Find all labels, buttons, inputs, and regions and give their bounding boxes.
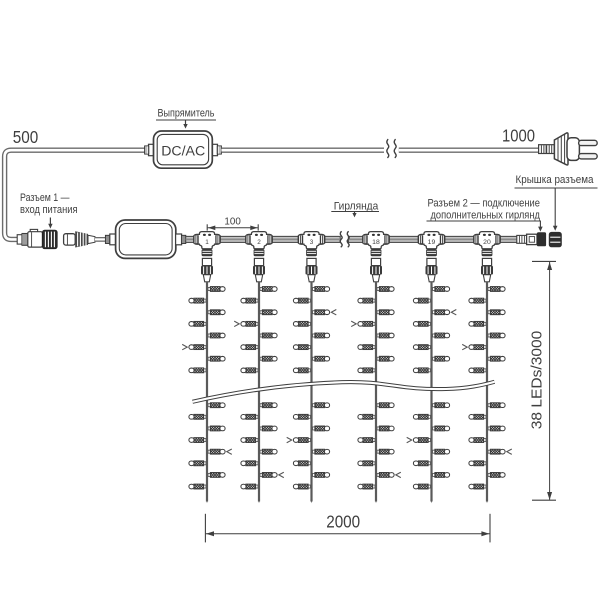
svg-text:Разъем 1 —: Разъем 1 — [20,192,70,204]
svg-text:Выпрямитель: Выпрямитель [158,108,215,120]
svg-text:2: 2 [257,239,261,246]
svg-text:Гирлянда: Гирлянда [334,201,379,213]
svg-text:1: 1 [205,239,209,246]
svg-text:Крышка разъема: Крышка разъема [516,174,594,186]
svg-text:18: 18 [372,239,380,246]
svg-text:дополнительных гирлянд: дополнительных гирлянд [430,210,540,222]
svg-text:2000: 2000 [326,512,360,532]
svg-text:1000: 1000 [502,126,535,146]
svg-text:3: 3 [310,239,314,246]
svg-text:19: 19 [428,239,436,246]
svg-text:100: 100 [224,217,241,228]
svg-text:20: 20 [483,239,491,246]
svg-text:38 LEDs/3000: 38 LEDs/3000 [529,331,546,430]
svg-text:DC/AC: DC/AC [161,144,205,160]
svg-text:500: 500 [13,127,39,147]
svg-text:вход питания: вход питания [20,204,78,216]
svg-text:Разъем 2 — подключение: Разъем 2 — подключение [427,197,540,209]
